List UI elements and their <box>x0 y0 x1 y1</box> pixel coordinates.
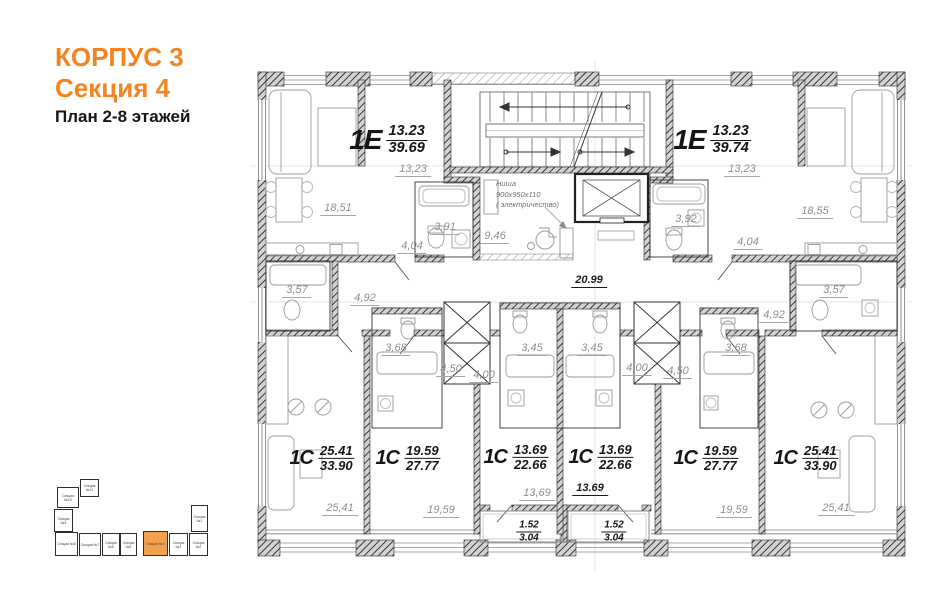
room-area-label: 3,91 <box>430 221 459 235</box>
balcony-area-label: 1.523.04 <box>601 520 626 545</box>
title-block: КОРПУС 3 Секция 4 План 2-8 этажей <box>55 42 190 128</box>
apartment-1c-4-label: 1С 13.6922.66 <box>568 443 633 471</box>
room-area-label: 3,92 <box>671 213 700 227</box>
minimap-section: Секция №6 <box>102 533 120 556</box>
room-area-label: 4,00 <box>469 369 498 383</box>
room-area-label: 3,45 <box>517 342 546 356</box>
room-area-label: 3,57 <box>282 284 311 298</box>
room-area-label: 4,92 <box>350 292 379 306</box>
stair-landing-wall <box>450 167 673 173</box>
room-area-label: 4,50 <box>436 363 465 377</box>
corridor-area-label: 20.99 <box>571 274 607 288</box>
balcony-area-label: 1.523.04 <box>516 520 541 545</box>
stairs <box>450 92 673 173</box>
apartment-1c-5-label: 1С 19.5927.77 <box>673 444 738 472</box>
room-area-label: 25,41 <box>322 502 358 516</box>
floors-subtitle: План 2-8 этажей <box>55 107 190 127</box>
minimap-section: Секция №5 <box>120 533 137 556</box>
minimap-section: Секция №9 <box>54 509 73 532</box>
apartment-1e-right-label: 1Е 13.2339.74 <box>673 124 751 156</box>
room-area-label: 4,04 <box>397 240 426 254</box>
section-title: Секция 4 <box>55 73 190 104</box>
minimap-section-current: Секция №4 <box>143 531 168 556</box>
minimap-section: Секция №11 <box>80 479 99 497</box>
apartment-1c-6-label: 1С 25.4133.90 <box>773 444 838 472</box>
minimap-section: Секция №3 <box>169 533 188 556</box>
room-area-label: 19,59 <box>423 504 459 518</box>
minimap-section: Секция №8 <box>55 532 78 556</box>
apartment-1c-2-label: 1С 19.5927.77 <box>375 444 440 472</box>
room-area-label: 13,23 <box>395 163 431 177</box>
room-area-label: 9,46 <box>480 230 509 244</box>
room-area-label: 3,45 <box>577 342 606 356</box>
minimap-section: Секция №10 <box>57 487 79 508</box>
room-area-label: 4,50 <box>663 365 692 379</box>
kitchens <box>266 243 897 424</box>
room-area-label: 3,57 <box>819 284 848 298</box>
minimap-section: Секция №7 <box>79 533 101 556</box>
room-area-label: 19,59 <box>716 504 752 518</box>
elevator-shaft <box>575 174 648 240</box>
niche-annotation: Ниша 900х950х110 ( электричество) <box>496 179 559 211</box>
room-area-label: 13,69 <box>519 487 555 501</box>
room-area-label: 4,00 <box>622 362 651 376</box>
facade-top <box>258 72 905 86</box>
building-title: КОРПУС 3 <box>55 42 190 73</box>
room-area-label: 3,68 <box>721 342 750 356</box>
room-area-label: 25,41 <box>818 502 854 516</box>
room-area-label: 13.69 <box>572 482 608 496</box>
room-area-label: 4,92 <box>759 309 788 323</box>
room-area-label: 18,51 <box>320 202 356 216</box>
wheelchair-icon <box>528 228 558 250</box>
minimap-section: Секция №1 <box>191 505 208 532</box>
apartment-1c-3-label: 1С 13.6922.66 <box>483 443 548 471</box>
room-area-label: 18,55 <box>797 205 833 219</box>
apartment-1c-1-label: 1С 25.4133.90 <box>289 444 354 472</box>
apartment-1e-left-label: 1Е 13.2339.69 <box>349 124 427 156</box>
room-area-label: 13,23 <box>724 163 760 177</box>
room-area-label: 3,68 <box>381 342 410 356</box>
minimap-section: Секция №2 <box>189 533 208 556</box>
facade-bottom <box>258 530 905 556</box>
room-area-label: 4,04 <box>733 236 762 250</box>
